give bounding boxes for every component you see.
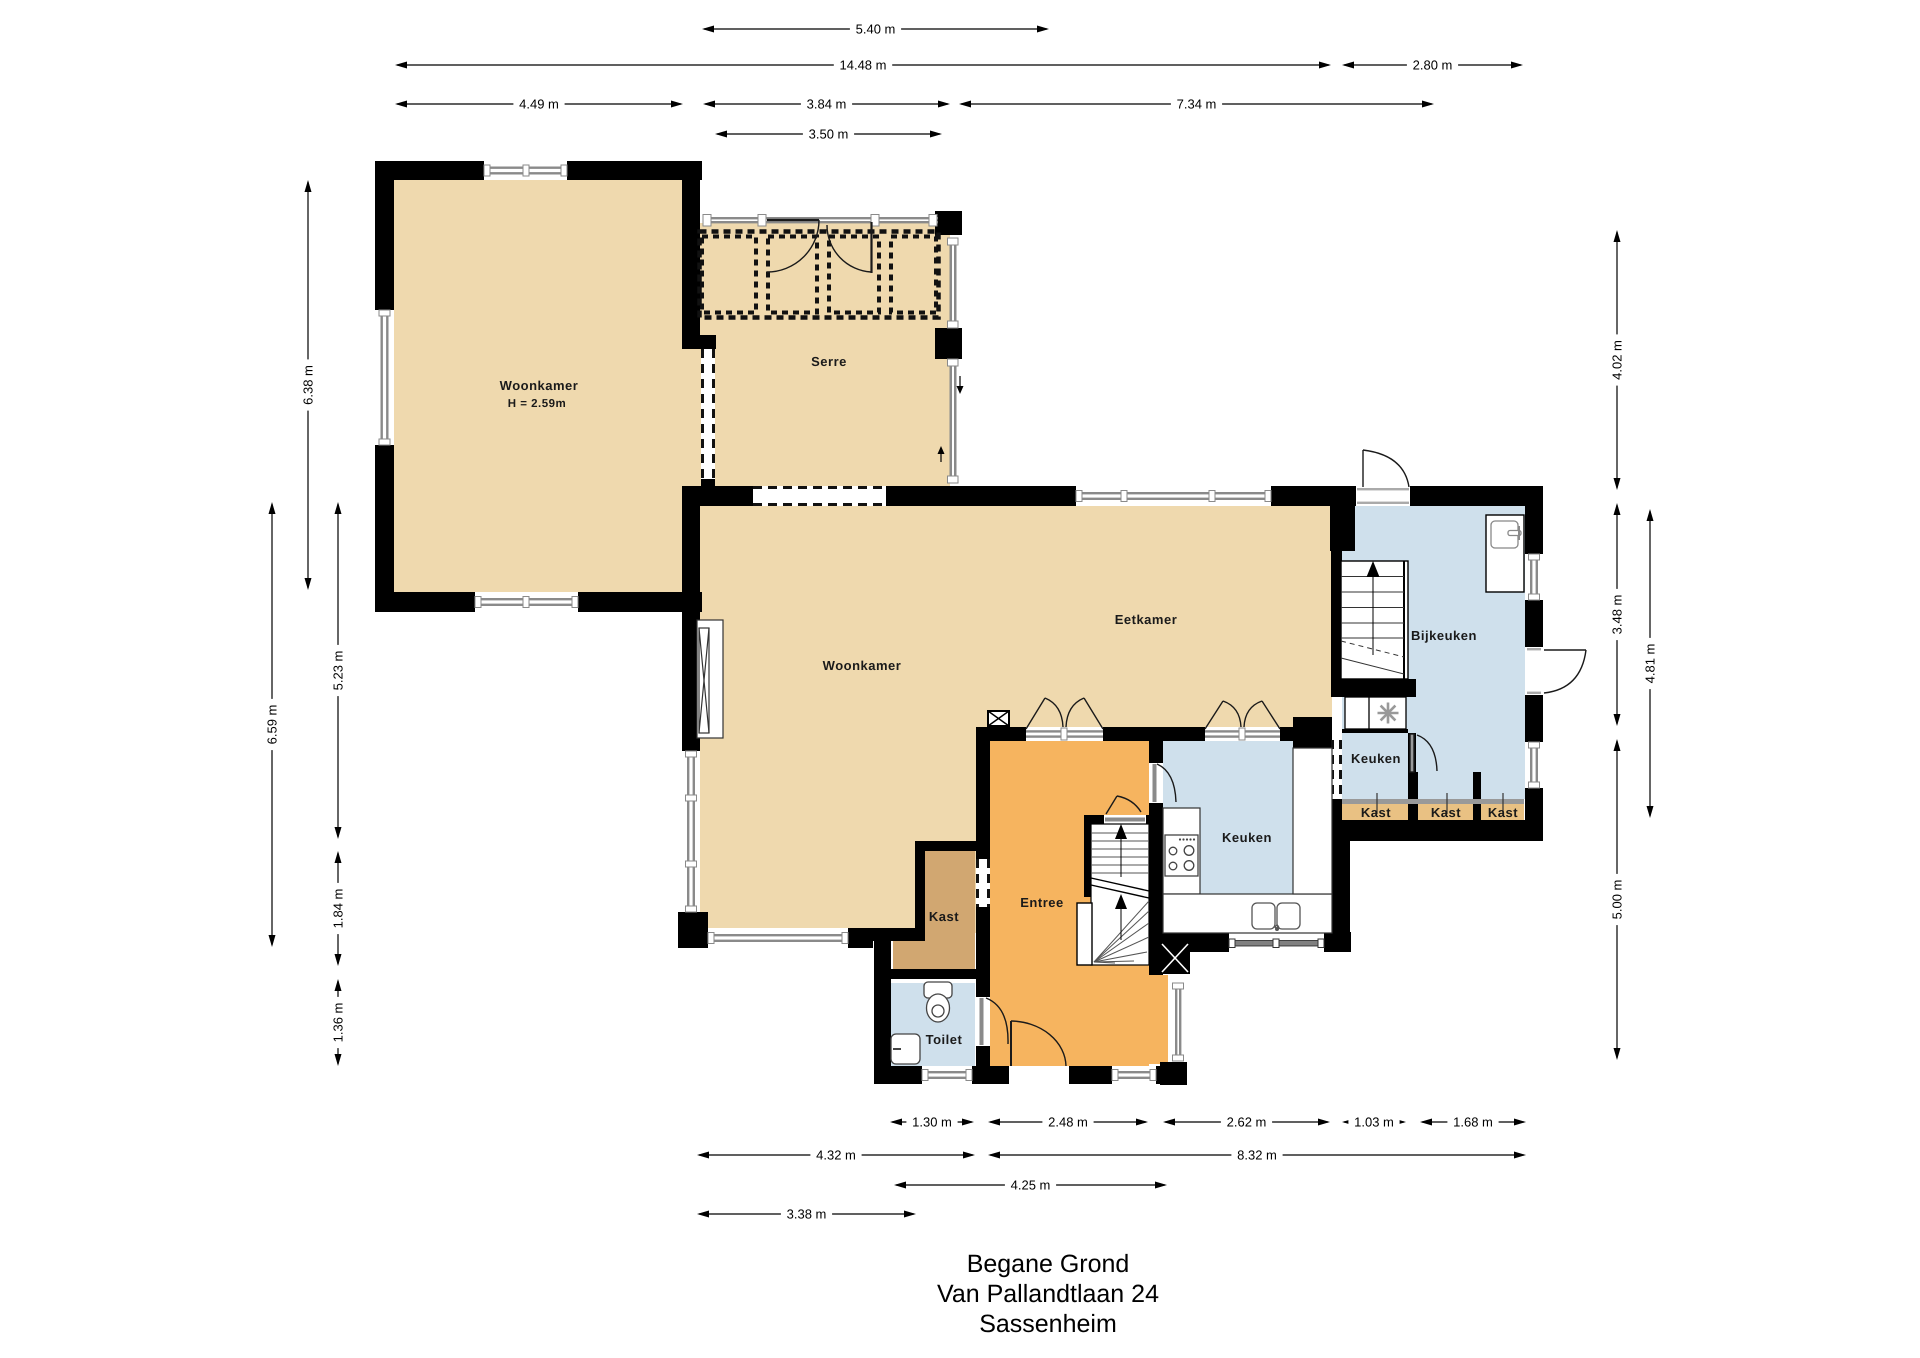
svg-text:Woonkamer: Woonkamer [823,658,902,673]
svg-text:Kast: Kast [1488,805,1518,820]
svg-text:6.59 m: 6.59 m [265,705,280,745]
svg-text:Keuken: Keuken [1351,751,1401,766]
svg-text:7.34 m: 7.34 m [1177,97,1217,112]
svg-text:Bijkeuken: Bijkeuken [1411,628,1477,643]
svg-text:Toilet: Toilet [926,1032,963,1047]
svg-text:Kast: Kast [929,909,959,924]
svg-text:Begane Grond: Begane Grond [967,1250,1130,1278]
svg-text:8.32 m: 8.32 m [1237,1148,1277,1163]
svg-text:5.23 m: 5.23 m [331,651,346,691]
svg-text:3.84 m: 3.84 m [807,97,847,112]
svg-text:1.03 m: 1.03 m [1354,1115,1394,1130]
svg-text:Woonkamer: Woonkamer [500,378,579,393]
svg-text:4.32 m: 4.32 m [816,1148,856,1163]
svg-text:4.81 m: 4.81 m [1643,644,1658,684]
svg-text:4.49 m: 4.49 m [519,97,559,112]
svg-text:Entree: Entree [1020,895,1063,910]
svg-text:5.00 m: 5.00 m [1610,880,1625,920]
svg-text:Serre: Serre [811,354,847,369]
svg-text:H = 2.59m: H = 2.59m [508,398,567,410]
svg-text:14.48 m: 14.48 m [840,58,887,73]
svg-text:3.48 m: 3.48 m [1610,595,1625,635]
svg-text:5.40 m: 5.40 m [856,22,896,37]
svg-text:Kast: Kast [1361,805,1391,820]
svg-text:1.68 m: 1.68 m [1453,1115,1493,1130]
svg-text:Van Pallandtlaan 24: Van Pallandtlaan 24 [937,1280,1159,1308]
svg-text:6.38 m: 6.38 m [301,365,316,405]
svg-text:1.84 m: 1.84 m [331,889,346,929]
svg-text:Kast: Kast [1431,805,1461,820]
svg-text:Keuken: Keuken [1222,830,1272,845]
svg-text:2.62 m: 2.62 m [1227,1115,1267,1130]
svg-text:3.50 m: 3.50 m [809,127,849,142]
svg-text:Eetkamer: Eetkamer [1115,612,1178,627]
svg-text:1.30 m: 1.30 m [912,1115,952,1130]
svg-text:2.80 m: 2.80 m [1413,58,1453,73]
svg-text:4.25 m: 4.25 m [1011,1178,1051,1193]
svg-text:Sassenheim: Sassenheim [979,1310,1117,1338]
svg-text:1.36 m: 1.36 m [331,1003,346,1043]
svg-text:2.48 m: 2.48 m [1048,1115,1088,1130]
svg-text:3.38 m: 3.38 m [787,1207,827,1222]
svg-text:4.02 m: 4.02 m [1610,340,1625,380]
